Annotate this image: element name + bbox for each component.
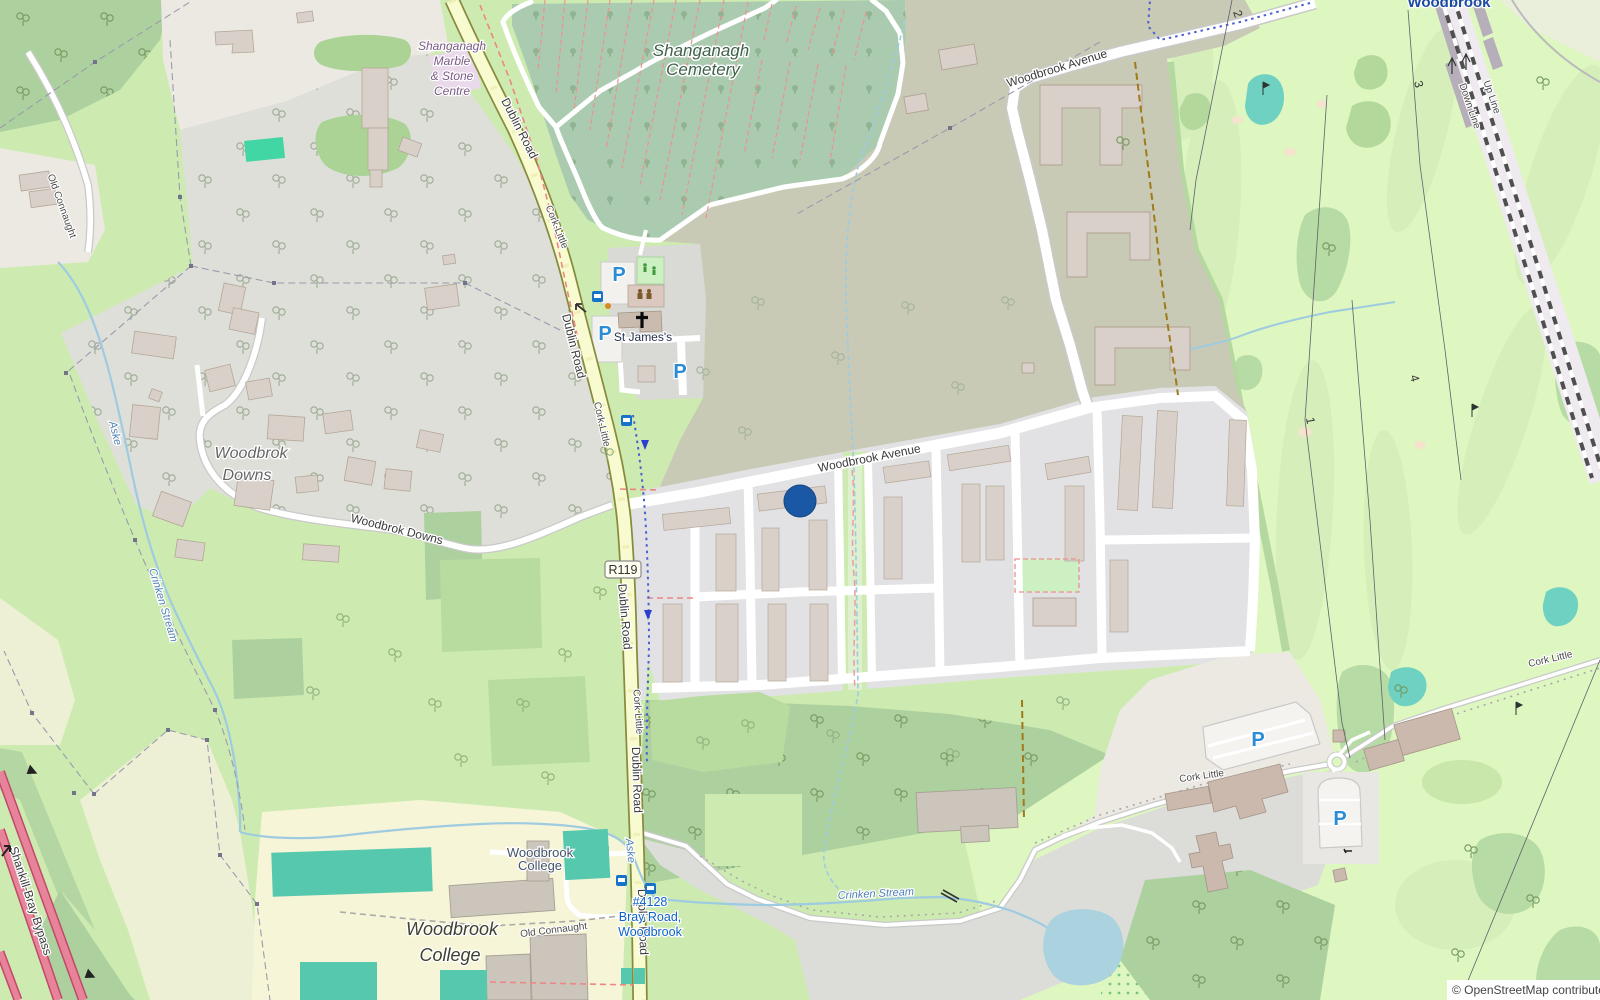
svg-text:Shanganagh: Shanganagh [653,41,749,60]
svg-text:College: College [518,858,562,873]
svg-text:#4128: #4128 [633,895,668,909]
svg-text:© OpenStreetMap contributors: © OpenStreetMap contributors [1452,983,1600,997]
svg-text:Dublin Road: Dublin Road [629,747,645,813]
svg-text:Shanganagh: Shanganagh [418,39,486,53]
svg-text:College: College [419,945,480,965]
svg-text:Woodbrook: Woodbrook [406,919,499,939]
svg-text:Woodbrok: Woodbrok [215,445,289,462]
svg-text:Centre: Centre [434,84,470,98]
svg-text:Woodbrook: Woodbrook [618,925,682,939]
svg-text:St James's: St James's [614,330,672,344]
svg-text:Cemetery: Cemetery [666,60,741,79]
svg-text:Woodbrook: Woodbrook [1407,0,1491,11]
svg-text:P: P [612,264,625,286]
svg-text:Marble: Marble [434,54,471,68]
svg-text:P: P [1251,729,1264,751]
svg-text:P: P [598,323,611,345]
svg-text:& Stone: & Stone [431,69,474,83]
svg-text:Downs: Downs [223,467,272,484]
svg-text:Bray Road,: Bray Road, [619,910,682,924]
svg-text:P: P [1333,808,1346,830]
svg-text:R119: R119 [609,563,638,577]
svg-text:P: P [673,361,686,383]
